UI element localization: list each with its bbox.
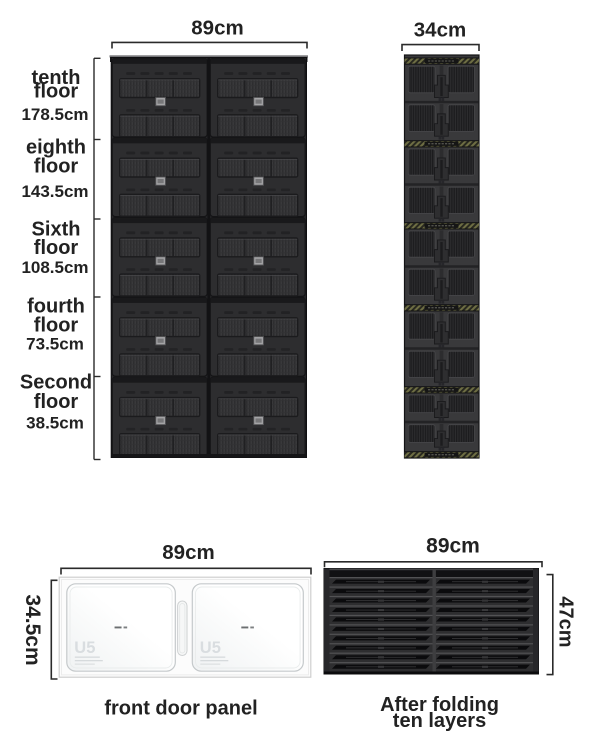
svg-text:89cm: 89cm — [426, 535, 480, 558]
svg-text:floor: floor — [34, 237, 79, 259]
svg-text:34.5cm: 34.5cm — [21, 594, 44, 665]
svg-text:178.5cm: 178.5cm — [21, 105, 88, 124]
svg-text:ten layers: ten layers — [393, 710, 486, 732]
svg-text:front door panel: front door panel — [104, 698, 257, 720]
svg-text:108.5cm: 108.5cm — [21, 258, 88, 277]
svg-text:89cm: 89cm — [162, 541, 214, 564]
svg-text:floor: floor — [34, 391, 79, 413]
svg-text:floor: floor — [34, 315, 79, 337]
svg-text:47cm: 47cm — [555, 596, 577, 647]
svg-text:floor: floor — [34, 81, 79, 103]
svg-text:73.5cm: 73.5cm — [26, 335, 84, 354]
svg-text:U5: U5 — [74, 639, 95, 657]
svg-text:38.5cm: 38.5cm — [26, 414, 84, 433]
svg-text:U5: U5 — [200, 639, 221, 657]
svg-text:floor: floor — [34, 156, 79, 178]
svg-text:34cm: 34cm — [414, 19, 466, 42]
svg-text:143.5cm: 143.5cm — [21, 182, 88, 201]
svg-text:89cm: 89cm — [191, 17, 243, 40]
